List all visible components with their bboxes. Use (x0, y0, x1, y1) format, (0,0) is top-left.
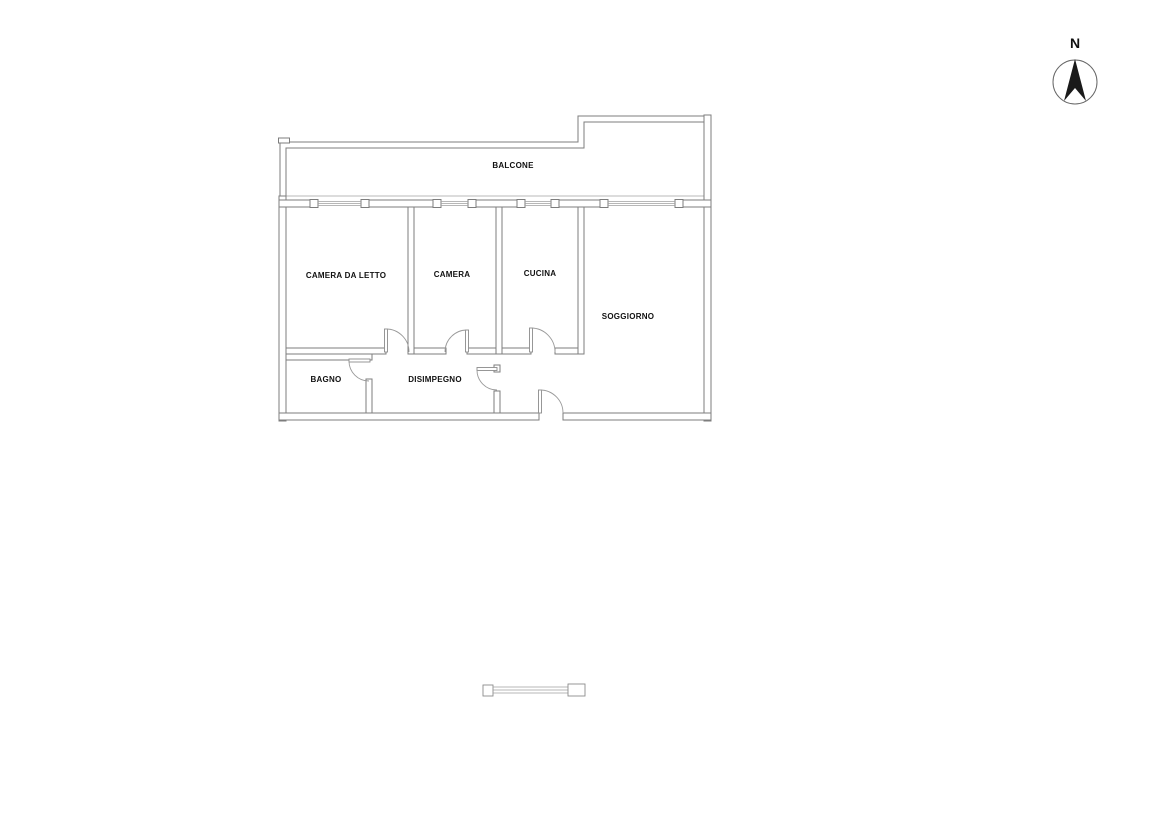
scale-window-symbol (483, 684, 585, 696)
room-label-disimpegno: DISIMPEGNO (408, 375, 462, 384)
wall-cameradaletto-camera (408, 207, 414, 354)
wall-camera-cucina (496, 207, 502, 354)
wall-bagno-disimpegno (366, 379, 372, 413)
room-label-cucina: CUCINA (524, 269, 557, 278)
wall-right-outer (704, 115, 711, 421)
door-bagno (349, 359, 370, 381)
balcony-railing (279, 116, 711, 201)
room-label-soggiorno: SOGGIORNO (602, 312, 654, 321)
floor-plan-canvas: BALCONE CAMERA DA LETTO CAMERA CUCINA SO… (0, 0, 1154, 817)
wall-cucina-soggiorno (578, 207, 584, 354)
wall-bottom-right (563, 413, 711, 420)
room-label-camera: CAMERA (434, 270, 471, 279)
north-needle-icon (1064, 59, 1086, 101)
room-label-bagno: BAGNO (310, 375, 341, 384)
door-disimpegno-ingresso (477, 368, 497, 391)
room-label-balcone: BALCONE (492, 161, 534, 170)
facade-wall (279, 200, 711, 208)
floor-plan-page: BALCONE CAMERA DA LETTO CAMERA CUCINA SO… (0, 0, 1154, 817)
wall-bottom-left (279, 413, 539, 420)
wall-disimpegno-ingresso (494, 391, 500, 413)
door-cucina (530, 328, 556, 352)
door-camera (445, 330, 469, 352)
north-label: N (1070, 35, 1080, 51)
door-camera-da-letto (385, 329, 410, 352)
balcony-corner-notch (279, 138, 290, 143)
north-compass: N (1053, 35, 1097, 104)
wall-left-outer (279, 196, 286, 421)
doors (349, 328, 563, 413)
door-main-entrance (539, 390, 564, 413)
room-label-camera-da-letto: CAMERA DA LETTO (306, 271, 386, 280)
